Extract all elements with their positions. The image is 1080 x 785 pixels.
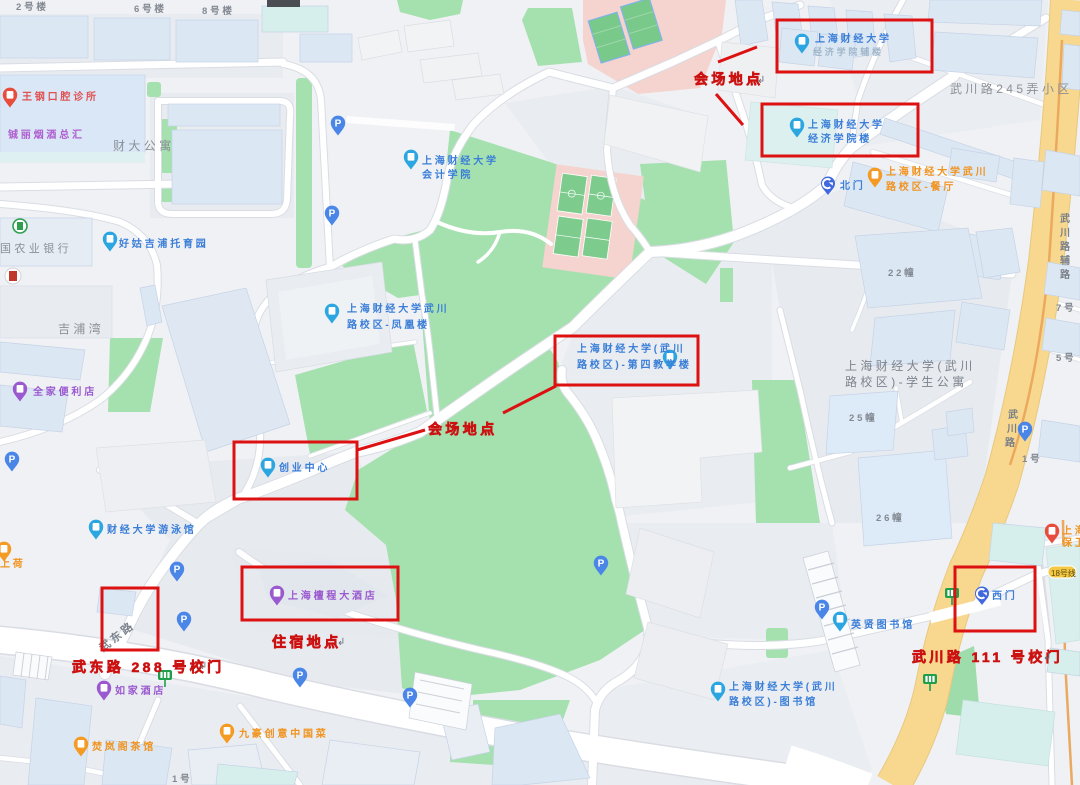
svg-text:经济学院楼: 经济学院楼 bbox=[808, 132, 872, 145]
svg-text:路校区-餐厅: 路校区-餐厅 bbox=[886, 180, 956, 193]
svg-text:财大公寓: 财大公寓 bbox=[113, 138, 175, 153]
svg-text:王钢口腔诊所: 王钢口腔诊所 bbox=[22, 90, 99, 103]
svg-text:上海财经大学武川: 上海财经大学武川 bbox=[347, 302, 449, 315]
svg-text:上海财经大学武川: 上海财经大学武川 bbox=[886, 165, 988, 178]
svg-text:会场地点: 会场地点 bbox=[694, 71, 764, 87]
svg-text:创业中心: 创业中心 bbox=[278, 461, 330, 474]
svg-text:上海财经大学: 上海财经大学 bbox=[815, 32, 892, 45]
svg-text:国农业银行: 国农业银行 bbox=[0, 241, 72, 255]
svg-text:会计学院: 会计学院 bbox=[422, 168, 473, 181]
svg-text:22幢: 22幢 bbox=[888, 267, 916, 279]
svg-text:↲: ↲ bbox=[199, 661, 207, 672]
svg-text:武: 武 bbox=[1008, 408, 1021, 421]
svg-text:↲: ↲ bbox=[1043, 652, 1051, 663]
svg-text:上海财经大学(武川: 上海财经大学(武川 bbox=[577, 342, 686, 355]
svg-text:川: 川 bbox=[1006, 423, 1020, 435]
svg-text:吉浦湾: 吉浦湾 bbox=[58, 321, 104, 336]
svg-text:↲: ↲ bbox=[757, 75, 765, 86]
svg-text:1号: 1号 bbox=[1022, 454, 1042, 465]
svg-text:路校区)-图书馆: 路校区)-图书馆 bbox=[729, 695, 818, 708]
svg-text:上海: 上海 bbox=[1062, 524, 1080, 537]
svg-text:武川路 111 号校门: 武川路 111 号校门 bbox=[912, 649, 1063, 665]
svg-text:5号: 5号 bbox=[1056, 353, 1076, 364]
svg-text:路校区-凤凰楼: 路校区-凤凰楼 bbox=[347, 318, 430, 331]
svg-text:上海财经大学(武川: 上海财经大学(武川 bbox=[845, 358, 976, 373]
svg-text:保卫: 保卫 bbox=[1061, 536, 1080, 549]
svg-text:7号: 7号 bbox=[1056, 303, 1076, 314]
svg-text:北门: 北门 bbox=[840, 179, 866, 192]
svg-text:住宿地点: 住宿地点 bbox=[272, 634, 342, 650]
svg-text:会场地点: 会场地点 bbox=[428, 421, 498, 437]
svg-text:武: 武 bbox=[1060, 212, 1073, 225]
svg-text:25幢: 25幢 bbox=[849, 412, 877, 424]
svg-text:路: 路 bbox=[1060, 268, 1073, 281]
svg-text:2号楼: 2号楼 bbox=[16, 1, 49, 13]
svg-text:1号: 1号 bbox=[172, 774, 192, 785]
svg-text:英贤图书馆: 英贤图书馆 bbox=[850, 618, 915, 631]
svg-text:川: 川 bbox=[1059, 227, 1073, 239]
svg-text:财经大学游泳馆: 财经大学游泳馆 bbox=[106, 523, 197, 536]
svg-text:18号线: 18号线 bbox=[1051, 568, 1076, 578]
svg-text:路: 路 bbox=[1005, 436, 1018, 449]
svg-text:西门: 西门 bbox=[992, 589, 1018, 602]
svg-text:6号楼: 6号楼 bbox=[134, 3, 167, 15]
svg-text:铖丽烟酒总汇: 铖丽烟酒总汇 bbox=[8, 128, 85, 141]
svg-text:路: 路 bbox=[1060, 240, 1073, 253]
svg-text:上海财经大学: 上海财经大学 bbox=[422, 154, 499, 167]
svg-text:全家便利店: 全家便利店 bbox=[32, 385, 97, 398]
svg-text:九豪创意中国菜: 九豪创意中国菜 bbox=[238, 727, 329, 740]
svg-text:8号楼: 8号楼 bbox=[202, 5, 235, 17]
svg-text:辅: 辅 bbox=[1060, 254, 1073, 267]
svg-text:路校区)-学生公寓: 路校区)-学生公寓 bbox=[845, 374, 968, 389]
svg-text:焚岚阁茶馆: 焚岚阁茶馆 bbox=[91, 740, 156, 753]
svg-text:经济学院辅楼: 经济学院辅楼 bbox=[813, 46, 884, 57]
svg-text:上海财经大学(武川: 上海财经大学(武川 bbox=[729, 680, 838, 693]
svg-text:上荷: 上荷 bbox=[0, 557, 26, 570]
svg-text:路校区)-第四教学楼: 路校区)-第四教学楼 bbox=[577, 358, 692, 371]
svg-text:上海檀程大酒店: 上海檀程大酒店 bbox=[288, 589, 378, 602]
svg-text:武川路245弄小区: 武川路245弄小区 bbox=[950, 81, 1073, 96]
svg-text:26幢: 26幢 bbox=[876, 512, 904, 524]
svg-text:如家酒店: 如家酒店 bbox=[115, 684, 166, 697]
svg-text:上海财经大学: 上海财经大学 bbox=[808, 118, 885, 131]
svg-text:↲: ↲ bbox=[337, 637, 345, 648]
svg-text:好姑吉浦托育园: 好姑吉浦托育园 bbox=[118, 237, 209, 250]
